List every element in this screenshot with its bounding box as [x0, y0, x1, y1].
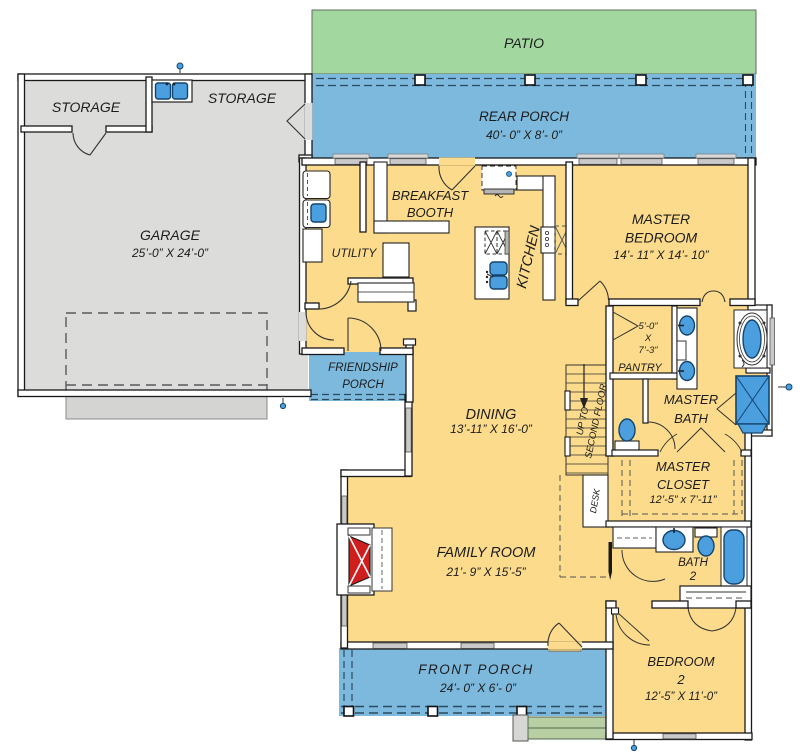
svg-text:FAMILY ROOM: FAMILY ROOM: [437, 545, 537, 561]
svg-text:12’-5” x 7’-11”: 12’-5” x 7’-11”: [649, 494, 717, 506]
svg-text:PANTRY: PANTRY: [618, 362, 662, 374]
svg-text:DINING: DINING: [466, 407, 517, 423]
svg-text:CLOSET: CLOSET: [657, 477, 710, 492]
svg-text:BEDROOM: BEDROOM: [647, 654, 714, 669]
svg-text:BREAKFAST: BREAKFAST: [392, 188, 469, 203]
svg-text:21’- 9” X 15’-5”: 21’- 9” X 15’-5”: [445, 565, 526, 579]
svg-text:REAR PORCH: REAR PORCH: [479, 109, 569, 124]
svg-text:UTILITY: UTILITY: [332, 246, 378, 260]
svg-text:2: 2: [676, 672, 685, 687]
svg-text:MASTER: MASTER: [632, 211, 690, 227]
svg-text:FRIENDSHIP: FRIENDSHIP: [328, 362, 398, 374]
svg-text:25’-0” X 24’-0”: 25’-0” X 24’-0”: [131, 246, 209, 260]
svg-text:STORAGE: STORAGE: [208, 90, 277, 106]
svg-text:BATH: BATH: [678, 557, 709, 569]
svg-text:GARAGE: GARAGE: [140, 227, 201, 243]
svg-text:12’-5” X 11’-0”: 12’-5” X 11’-0”: [645, 691, 718, 703]
svg-text:7’-3”: 7’-3”: [638, 345, 658, 356]
svg-text:BOOTH: BOOTH: [407, 205, 454, 220]
svg-text:PATIO: PATIO: [504, 35, 544, 51]
svg-text:13’-11” X 16’-0”: 13’-11” X 16’-0”: [450, 422, 533, 436]
svg-text:MASTER: MASTER: [656, 459, 710, 474]
svg-text:FRONT PORCH: FRONT PORCH: [418, 662, 534, 677]
svg-text:BATH: BATH: [674, 411, 708, 426]
svg-text:5’-0”: 5’-0”: [638, 321, 658, 332]
svg-text:24’- 0” X 6’- 0”: 24’- 0” X 6’- 0”: [439, 681, 517, 695]
svg-text:STORAGE: STORAGE: [52, 99, 121, 115]
svg-text:MASTER: MASTER: [664, 392, 718, 407]
svg-text:X: X: [644, 333, 652, 344]
svg-text:2: 2: [689, 571, 697, 583]
svg-text:BEDROOM: BEDROOM: [625, 230, 698, 246]
svg-text:40’- 0” X 8’- 0”: 40’- 0” X 8’- 0”: [486, 128, 563, 142]
svg-text:14’- 11” X 14’- 10”: 14’- 11” X 14’- 10”: [613, 248, 709, 262]
svg-text:PORCH: PORCH: [342, 379, 384, 391]
